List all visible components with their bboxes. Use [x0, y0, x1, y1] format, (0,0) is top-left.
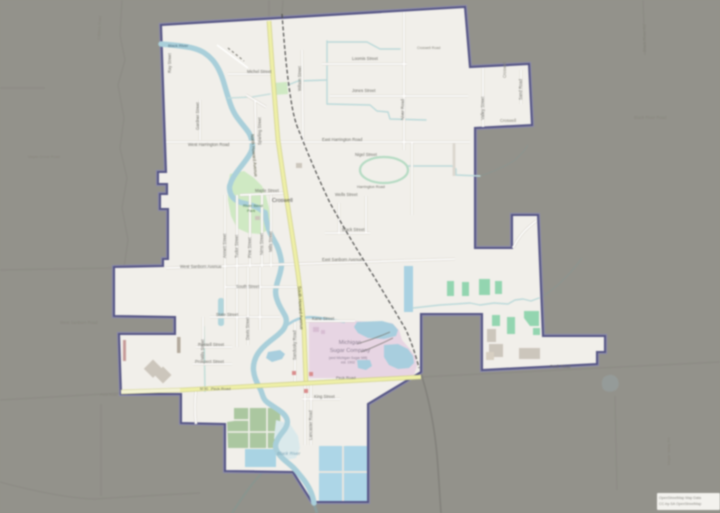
svg-text:Mills Street: Mills Street — [268, 230, 273, 252]
svg-text:Sandusky Road: Sandusky Road — [292, 330, 297, 360]
svg-text:West Sanborn Avenue: West Sanborn Avenue — [180, 264, 222, 269]
svg-text:Nigel Street: Nigel Street — [355, 152, 378, 157]
svg-text:State Street: State Street — [216, 312, 239, 317]
svg-text:Jones Street: Jones Street — [352, 88, 376, 93]
svg-text:Lancaster Road: Lancaster Road — [308, 410, 313, 440]
svg-text:Peck Road: Peck Road — [100, 393, 118, 397]
svg-text:(and Michigan Sugar Mill): (and Michigan Sugar Mill) — [329, 356, 367, 360]
svg-text:Maple Valley Rd: Maple Valley Rd — [667, 438, 671, 465]
svg-text:King Street: King Street — [314, 394, 336, 399]
svg-text:Ray Street: Ray Street — [167, 52, 172, 73]
svg-text:Kane Street: Kane Street — [312, 316, 335, 321]
svg-text:Maple Grove Road: Maple Grove Road — [28, 155, 60, 159]
svg-text:Tudor Street: Tudor Street — [234, 234, 239, 258]
svg-text:East Sanborn Avenue: East Sanborn Avenue — [322, 257, 363, 262]
svg-text:Gardner Street: Gardner Street — [195, 101, 200, 130]
svg-text:Black River Road: Black River Road — [634, 115, 667, 120]
svg-text:Valley Street: Valley Street — [480, 96, 485, 120]
svg-text:Park: Park — [247, 208, 255, 213]
svg-text:East Harrington Road: East Harrington Road — [322, 137, 363, 142]
svg-text:Annett Street: Annett Street — [222, 233, 227, 258]
svg-text:CC-by-SA OpenStreetMap: CC-by-SA OpenStreetMap — [659, 502, 701, 506]
svg-text:Michel Street: Michel Street — [247, 69, 272, 74]
svg-text:M 90: M 90 — [200, 387, 208, 391]
svg-text:Sugar Company: Sugar Company — [330, 348, 371, 354]
svg-text:Nims Street: Nims Street — [259, 232, 264, 255]
svg-text:South Street: South Street — [236, 284, 260, 289]
svg-text:Michigan: Michigan — [339, 340, 361, 346]
svg-text:Black Street: Black Street — [342, 227, 365, 232]
svg-text:Loomis Street: Loomis Street — [352, 56, 379, 61]
svg-text:Maple Street: Maple Street — [255, 188, 280, 193]
svg-text:Davis Street: Davis Street — [245, 316, 250, 340]
svg-text:Croswell Road: Croswell Road — [417, 46, 440, 50]
svg-text:West Harrington Road: West Harrington Road — [188, 142, 230, 147]
svg-text:Peck Road: Peck Road — [336, 375, 356, 380]
svg-text:Sand Road: Sand Road — [518, 78, 523, 100]
svg-text:est. 1902: est. 1902 — [341, 361, 355, 365]
svg-text:Peck Road: Peck Road — [211, 386, 231, 391]
svg-text:Black River: Black River — [277, 451, 301, 456]
svg-text:Wilson Street: Wilson Street — [297, 65, 302, 91]
svg-text:Sparling Street: Sparling Street — [257, 116, 262, 145]
svg-text:Wells Street: Wells Street — [335, 192, 358, 197]
svg-text:West Sanborn Road: West Sanborn Road — [60, 320, 98, 325]
svg-text:Black River Rd: Black River Rd — [642, 24, 647, 52]
svg-text:Harrington Road: Harrington Road — [357, 185, 385, 189]
svg-text:Black River: Black River — [168, 43, 189, 48]
svg-text:Mills Street: Mills Street — [200, 338, 205, 360]
svg-text:Pine Street: Pine Street — [247, 236, 252, 258]
svg-text:Niver Road: Niver Road — [400, 98, 405, 120]
svg-text:Croswell: Croswell — [272, 198, 293, 204]
svg-text:Croswell: Croswell — [502, 62, 507, 78]
svg-text:Croswell: Croswell — [500, 118, 516, 123]
svg-text:Peck Road: Peck Road — [550, 364, 571, 369]
svg-text:OpenStreetMap Map Data: OpenStreetMap Map Data — [659, 496, 701, 500]
